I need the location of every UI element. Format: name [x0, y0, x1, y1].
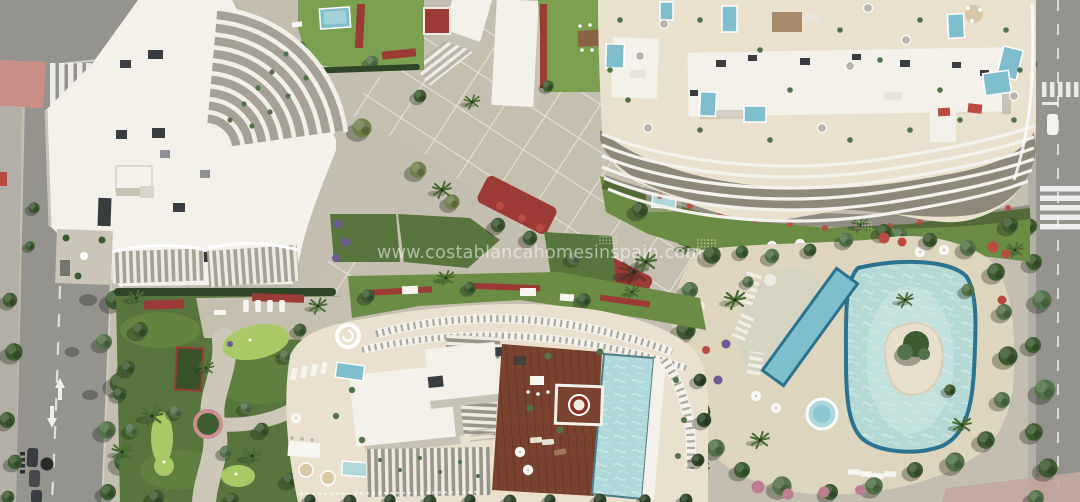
plunge-pool [335, 362, 365, 381]
aerial-render-image: www.costablancahomesinspain.com [0, 0, 1080, 502]
walkway-roof [491, 0, 538, 107]
south-louver-band [366, 447, 491, 497]
planter-box [424, 8, 450, 34]
round-daybed [321, 471, 335, 485]
deck-pavilion [555, 385, 602, 425]
white-car [1047, 114, 1058, 135]
round-daybed [299, 463, 313, 477]
dining-table [287, 441, 320, 458]
small-pool [342, 461, 369, 477]
sidewalk-bottom-right [942, 472, 1080, 502]
wood-pergola [772, 12, 802, 32]
ground-patio [55, 229, 113, 285]
building-top-right [598, 0, 1036, 222]
street-sign [0, 172, 7, 186]
round-planter [195, 411, 221, 437]
red-pavement [0, 60, 46, 108]
watermark-text: www.costablancahomesinspain.com [377, 243, 703, 263]
scene-root: www.costablancahomesinspain.com [0, 0, 1080, 502]
boundary-hedge [114, 288, 336, 296]
